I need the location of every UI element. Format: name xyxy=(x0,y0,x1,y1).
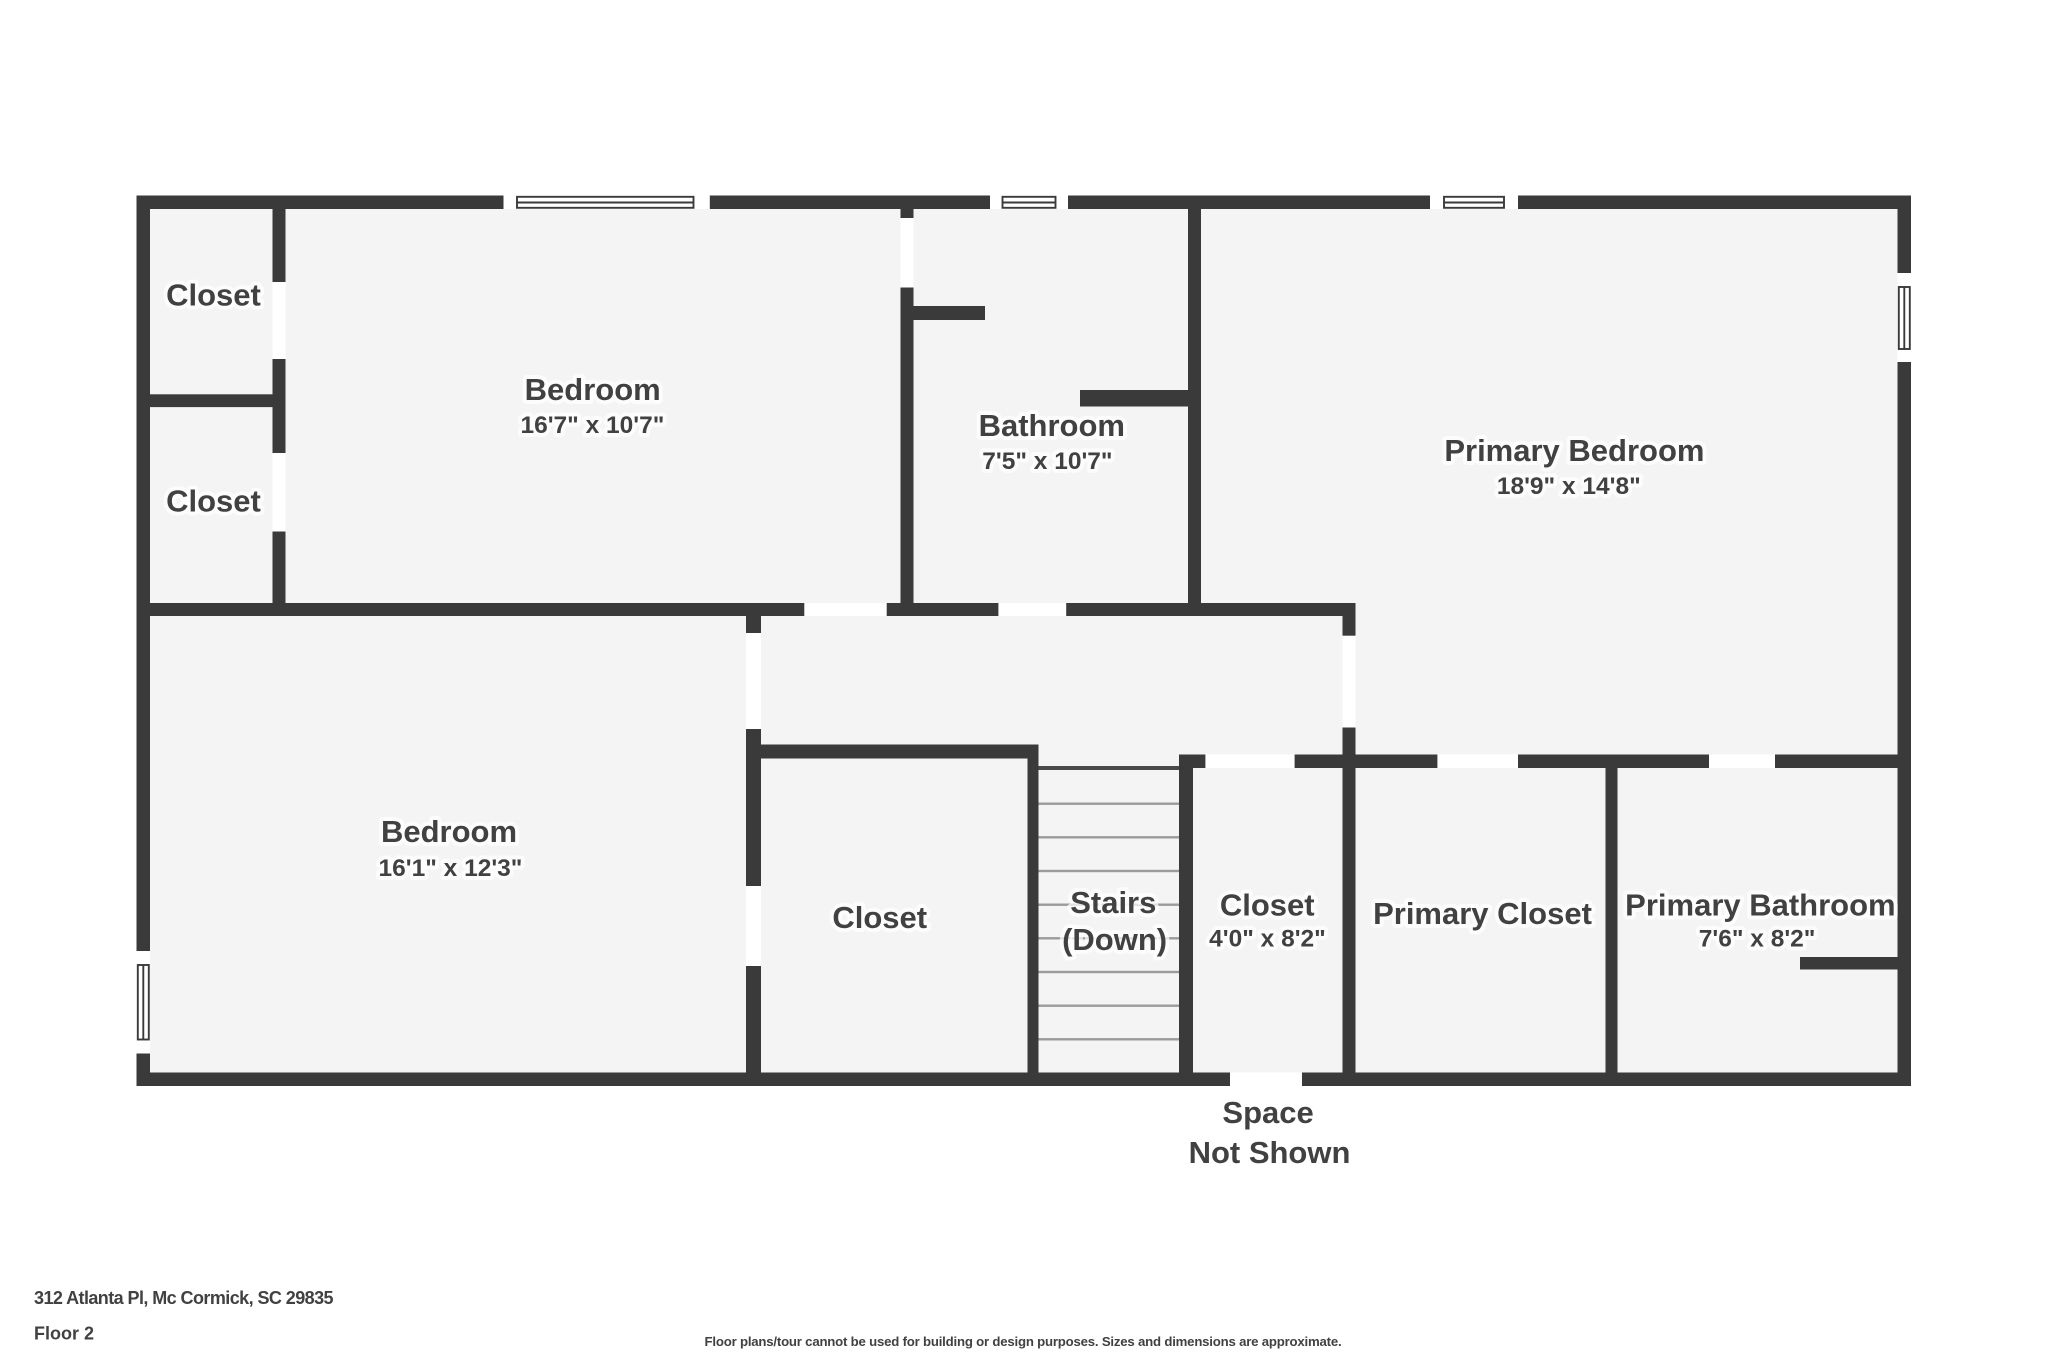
svg-text:7'6" x 8'2": 7'6" x 8'2" xyxy=(1699,926,1816,953)
svg-text:Closet: Closet xyxy=(1220,888,1315,923)
svg-text:Bedroom: Bedroom xyxy=(381,814,517,849)
svg-text:Floor 2: Floor 2 xyxy=(34,1324,94,1344)
svg-text:Space: Space xyxy=(1222,1095,1313,1130)
svg-text:4'0" x 8'2": 4'0" x 8'2" xyxy=(1209,926,1326,953)
svg-text:Primary Closet: Primary Closet xyxy=(1373,896,1592,931)
svg-text:Primary Bathroom: Primary Bathroom xyxy=(1625,887,1895,922)
svg-text:Floor plans/tour cannot be use: Floor plans/tour cannot be used for buil… xyxy=(705,1334,1342,1349)
svg-text:Closet: Closet xyxy=(166,484,261,519)
svg-text:Not Shown: Not Shown xyxy=(1189,1135,1351,1170)
svg-text:(Down): (Down) xyxy=(1062,922,1167,957)
svg-text:Bathroom: Bathroom xyxy=(979,408,1125,443)
svg-text:Primary Bedroom: Primary Bedroom xyxy=(1444,433,1704,468)
svg-text:312 Atlanta Pl, Mc Cormick, SC: 312 Atlanta Pl, Mc Cormick, SC 29835 xyxy=(34,1288,334,1308)
svg-text:Bedroom: Bedroom xyxy=(525,372,661,407)
svg-text:Closet: Closet xyxy=(832,900,927,935)
svg-text:16'1" x 12'3": 16'1" x 12'3" xyxy=(379,855,523,882)
svg-text:Stairs: Stairs xyxy=(1070,885,1156,920)
svg-text:18'9" x 14'8": 18'9" x 14'8" xyxy=(1497,473,1641,500)
svg-text:Closet: Closet xyxy=(166,278,261,313)
svg-text:7'5" x 10'7": 7'5" x 10'7" xyxy=(982,448,1112,475)
svg-text:16'7" x 10'7": 16'7" x 10'7" xyxy=(520,412,664,439)
